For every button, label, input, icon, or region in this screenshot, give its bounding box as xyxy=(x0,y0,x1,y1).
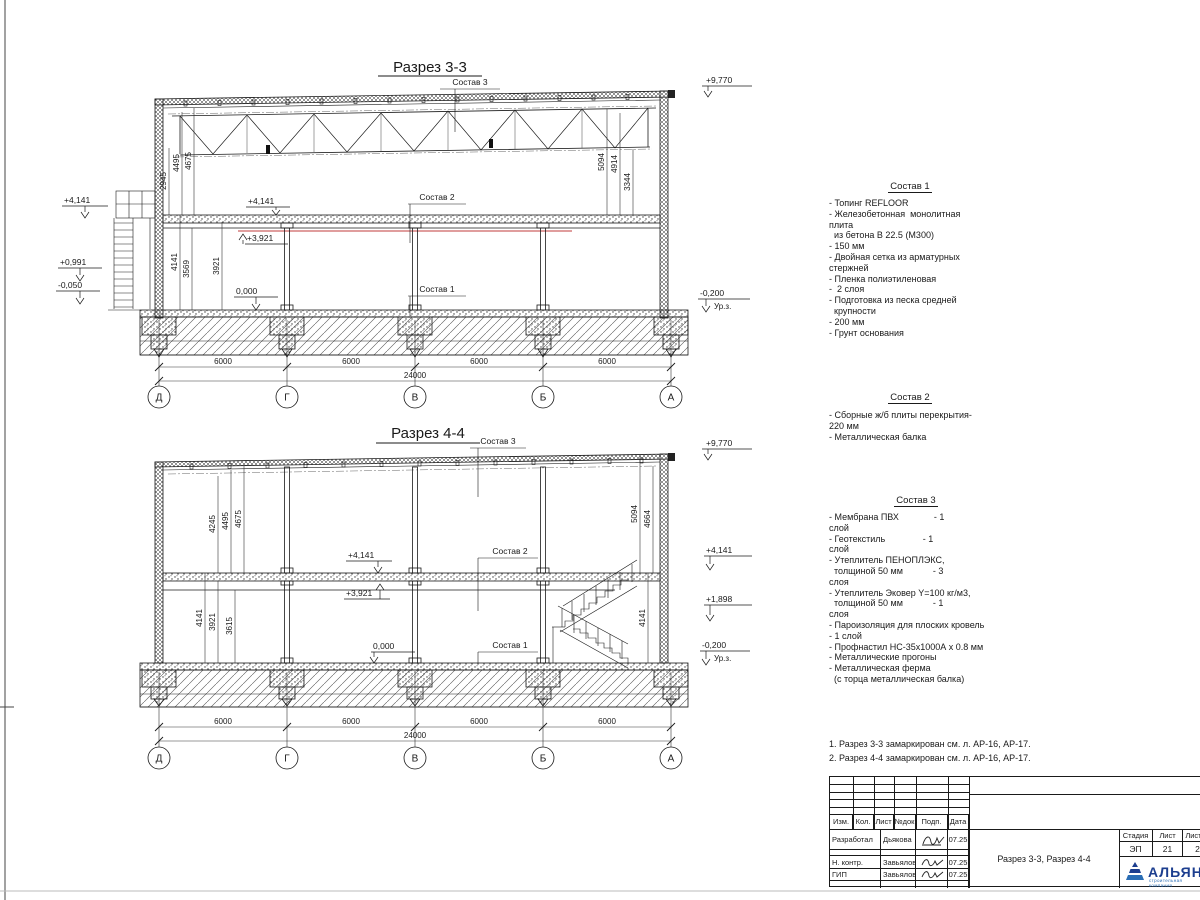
section44-linework xyxy=(140,453,688,707)
tb-name-zavyalova: Завьялова xyxy=(881,856,916,869)
tb-empty-cell xyxy=(830,881,881,888)
dim-label: 4495 xyxy=(221,512,230,530)
elev-top: +9,770 xyxy=(706,75,733,85)
callout-sostav3: Состав 3 xyxy=(480,436,516,446)
signature-icon xyxy=(919,832,945,848)
tb-sheet-value: 21 xyxy=(1153,842,1183,857)
dim-label: 3921 xyxy=(212,257,221,275)
tb-role-razrabotal: Разработал xyxy=(830,830,881,850)
sheet-footnotes: 1. Разрез 3-3 замаркирован см. л. АР-16,… xyxy=(829,738,1031,765)
elev-top: +9,770 xyxy=(706,438,733,448)
axis-bubble-label: Б xyxy=(540,393,547,404)
span-dim: 6000 xyxy=(598,717,616,726)
total-dim: 24000 xyxy=(404,371,427,380)
callout-sostav2: Состав 2 xyxy=(419,192,455,202)
notes-sostav2-heading: Состав 2 xyxy=(850,392,970,403)
dim-label: 4495 xyxy=(172,154,181,172)
tb-name-zavyalova: Завьялова xyxy=(881,869,916,881)
dim-label: 4914 xyxy=(610,155,619,173)
tb-stage-label: Стадия xyxy=(1119,829,1153,842)
drawing-sheet: Разрез 3-3 Состав 3 Состав 2 Состав 1 +9… xyxy=(0,0,1200,900)
span-dim: 6000 xyxy=(342,717,360,726)
tb-date: 07.25 xyxy=(948,869,969,881)
signature-icon xyxy=(919,857,945,868)
section33-linework xyxy=(108,90,688,357)
tb-col-izm: Изм. xyxy=(830,814,853,830)
total-dim: 24000 xyxy=(404,731,427,740)
notes-sostav3-body: - Мембрана ПВХ - 1 слой - Геотекстиль - … xyxy=(829,512,984,685)
callout-sostav1: Состав 1 xyxy=(419,284,455,294)
span-dim: 6000 xyxy=(470,717,488,726)
tb-sheets-label: Листов xyxy=(1183,829,1200,842)
section44-text: Разрез 4-4 Состав 3 Состав 2 Состав 1 +9… xyxy=(156,425,733,765)
tb-role-nkontr: Н. контр. xyxy=(830,856,881,869)
section33-title: Разрез 3-3 xyxy=(393,59,467,76)
dim-label: 3569 xyxy=(182,260,191,278)
company-subtitle: строительная компания xyxy=(1149,878,1200,888)
tb-date: 07.25 xyxy=(948,830,969,850)
axis-bubble-label: Д xyxy=(156,754,163,765)
span-dim: 6000 xyxy=(470,357,488,366)
title-block: Изм. Кол. Лист №док Подп. Дата Разработа… xyxy=(829,776,1200,887)
tb-signature xyxy=(916,830,948,850)
tb-signature xyxy=(916,869,948,881)
axis-bubble-label: А xyxy=(668,393,675,404)
notes-sostav3-heading: Состав 3 xyxy=(856,495,976,506)
axis-bubble-label: Г xyxy=(284,393,290,404)
tb-col-list: Лист xyxy=(874,814,894,830)
axis-bubble-label: В xyxy=(412,754,419,765)
drawing-canvas: Разрез 3-3 Состав 3 Состав 2 Состав 1 +9… xyxy=(0,0,1200,900)
tb-col-ndok: №док xyxy=(894,814,916,830)
dim-label: 3615 xyxy=(225,617,234,635)
elev-left-1: +4,141 xyxy=(64,195,91,205)
signature-icon xyxy=(919,869,945,880)
span-dim: 6000 xyxy=(214,357,232,366)
dim-label: 5094 xyxy=(597,153,606,171)
tb-col-kol: Кол. xyxy=(853,814,874,830)
elev-right-2: +1,898 xyxy=(706,594,733,604)
tb-col-podp: Подп. xyxy=(916,814,948,830)
tb-empty-cell xyxy=(916,881,948,888)
axis-bubble-label: В xyxy=(412,393,419,404)
axis-bubble-label: Д xyxy=(156,393,163,404)
elev-inner-0: 0,000 xyxy=(373,641,395,651)
tb-doc-title: Разрез 3-3, Разрез 4-4 xyxy=(969,829,1119,888)
callout-sostav1: Состав 1 xyxy=(492,640,528,650)
tb-sheets-value: 2 xyxy=(1183,842,1200,857)
dim-label: 4141 xyxy=(170,253,179,271)
tb-col-data: Дата xyxy=(948,814,969,830)
tb-role-gip: ГИП xyxy=(830,869,881,881)
elev-left-3: -0,050 xyxy=(58,280,82,290)
callout-sostav2: Состав 2 xyxy=(492,546,528,556)
tb-sheet-label: Лист xyxy=(1153,829,1183,842)
notes-sostav1-body: - Топинг REFLOOR - Железобетонная моноли… xyxy=(829,198,960,338)
dim-label: 4141 xyxy=(195,609,204,627)
dim-label: 3344 xyxy=(623,173,632,191)
notes-sostav2-body: - Сборные ж/б плиты перекрытия- 220 мм -… xyxy=(829,410,972,442)
ground-level-label: Ур.з. xyxy=(714,302,731,311)
elev-inner-2: +3,921 xyxy=(247,233,274,243)
elev-inner-1: +4,141 xyxy=(248,196,275,206)
dim-label: 4675 xyxy=(234,510,243,528)
dim-label: 4675 xyxy=(184,152,193,170)
dim-label: 3921 xyxy=(208,613,217,631)
callout-sostav3: Состав 3 xyxy=(452,77,488,87)
span-dim: 6000 xyxy=(598,357,616,366)
dim-label: 5094 xyxy=(630,505,639,523)
elev-right-low: -0,200 xyxy=(700,288,724,298)
dim-label: 4664 xyxy=(643,510,652,528)
dim-label: 4245 xyxy=(208,515,217,533)
span-dim: 6000 xyxy=(214,717,232,726)
elev-right-1: +4,141 xyxy=(706,545,733,555)
dim-label: 4141 xyxy=(638,609,647,627)
elev-inner-1: +4,141 xyxy=(348,550,375,560)
company-logo-icon xyxy=(1125,862,1145,883)
notes-sostav1-heading: Состав 1 xyxy=(850,181,970,192)
dim-label: 2945 xyxy=(159,172,168,190)
axis-bubble-label: Г xyxy=(284,754,290,765)
span-dim: 6000 xyxy=(342,357,360,366)
elev-left-2: +0,991 xyxy=(60,257,87,267)
elev-inner-0: 0,000 xyxy=(236,286,258,296)
tb-name-dyakova: Дьякова xyxy=(881,830,916,850)
section44-title: Разрез 4-4 xyxy=(391,425,465,442)
axis-bubble-label: А xyxy=(668,754,675,765)
elev-inner-2: +3,921 xyxy=(346,588,373,598)
tb-signature xyxy=(916,856,948,869)
tb-date: 07.25 xyxy=(948,856,969,869)
axis-bubble-label: Б xyxy=(540,754,547,765)
ground-level-label: Ур.з. xyxy=(714,654,731,663)
tb-stage-value: ЭП xyxy=(1119,842,1153,857)
tb-empty-cell xyxy=(948,881,969,888)
tb-empty-cell xyxy=(881,881,916,888)
elev-right-low: -0,200 xyxy=(702,640,726,650)
